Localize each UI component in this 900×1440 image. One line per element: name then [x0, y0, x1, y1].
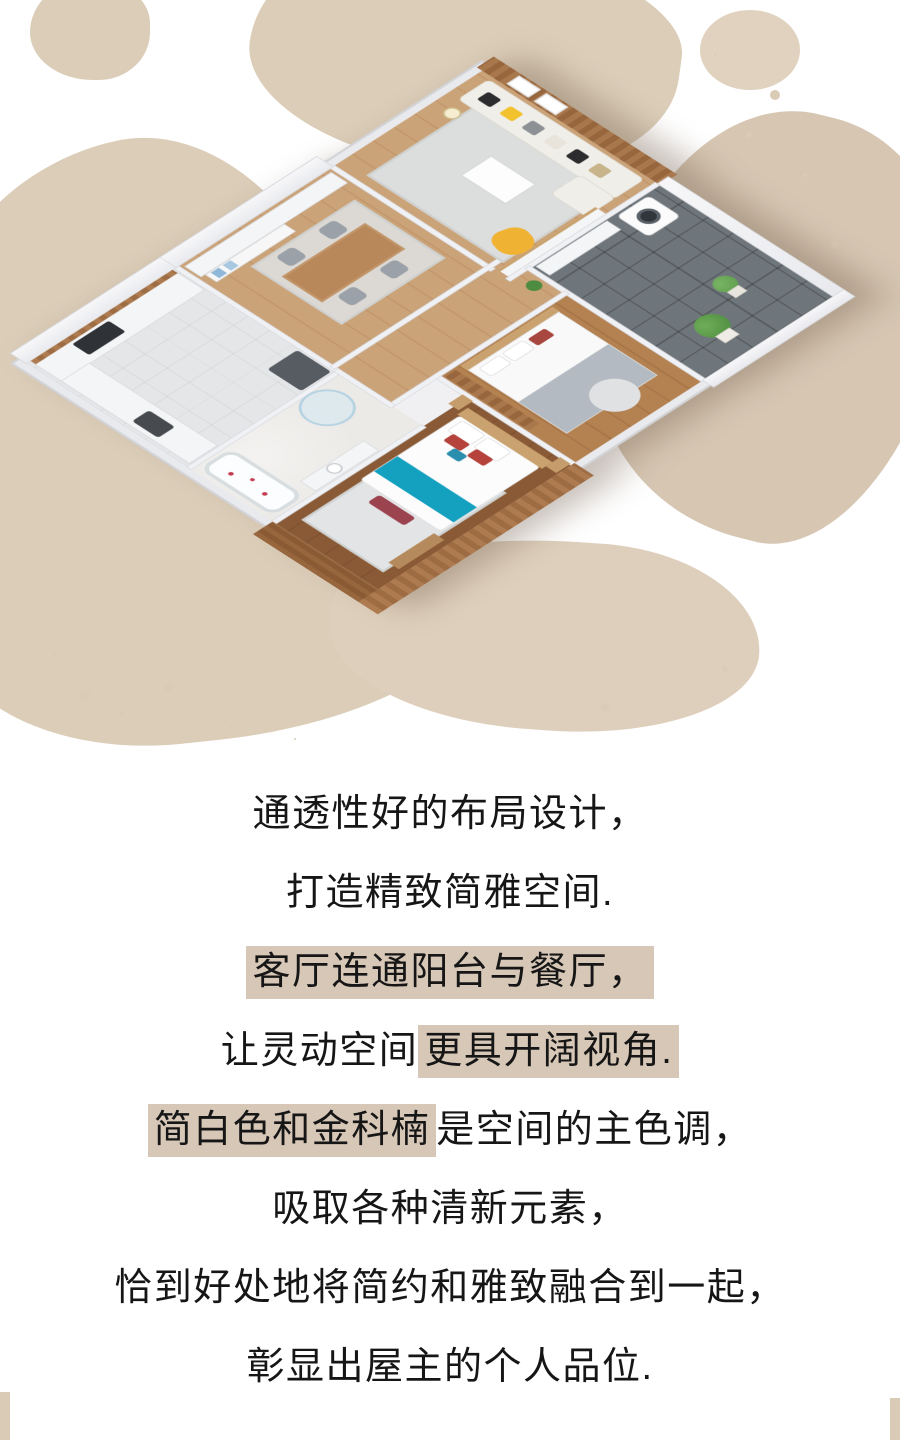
article-page: 通透性好的布局设计，打造精致简雅空间.客厅连通阳台与餐厅，让灵动空间更具开阔视角…	[0, 0, 900, 1440]
text-line: 简白色和金科楠是空间的主色调，	[0, 1107, 900, 1153]
text-line: 让灵动空间更具开阔视角.	[0, 1028, 900, 1074]
highlighted-text-segment: 更具开阔视角.	[418, 1025, 679, 1078]
text-segment: 恰到好处地将简约和雅致融合到一起，	[114, 1267, 786, 1309]
highlighted-text-segment: 客厅连通阳台与餐厅，	[246, 946, 653, 999]
highlighted-text-segment: 简白色和金科楠	[148, 1104, 437, 1157]
text-segment: 吸取各种清新元素，	[272, 1188, 628, 1230]
isometric-floor-plan	[80, 60, 780, 600]
text-line: 通透性好的布局设计，	[0, 791, 900, 837]
text-lines: 通透性好的布局设计，打造精致简雅空间.客厅连通阳台与餐厅，让灵动空间更具开阔视角…	[0, 791, 900, 1390]
article-text-block: 通透性好的布局设计，打造精致简雅空间.客厅连通阳台与餐厅，让灵动空间更具开阔视角…	[0, 775, 900, 1390]
floor-plan-hero	[0, 0, 900, 775]
text-segment: 通透性好的布局设计，	[252, 793, 647, 835]
apartment-plan	[27, 71, 834, 590]
text-segment: 打造精致简雅空间.	[286, 872, 614, 914]
text-line: 吸取各种清新元素，	[0, 1186, 900, 1232]
text-segment: 彰显出屋主的个人品位.	[246, 1346, 653, 1388]
text-line: 打造精致简雅空间.	[0, 870, 900, 916]
text-segment: 是空间的主色调，	[436, 1109, 752, 1151]
paint-speckles	[80, 690, 90, 700]
text-line: 彰显出屋主的个人品位.	[0, 1344, 900, 1390]
text-segment: 让灵动空间	[221, 1030, 419, 1072]
text-line: 恰到好处地将简约和雅致融合到一起，	[0, 1265, 900, 1311]
paint-splatter-edge	[0, 1392, 10, 1440]
paint-splatter-edge	[890, 1398, 900, 1440]
text-line: 客厅连通阳台与餐厅，	[0, 949, 900, 995]
